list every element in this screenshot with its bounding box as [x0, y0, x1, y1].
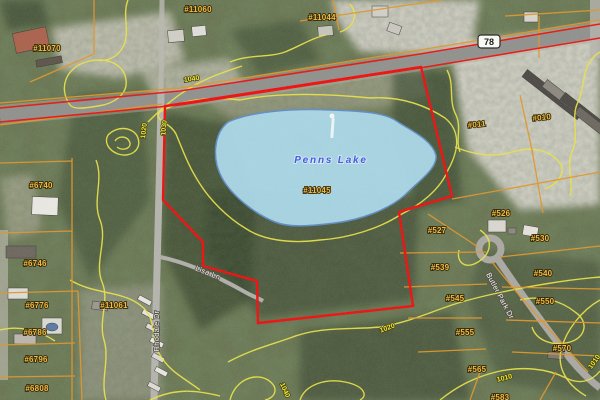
road-right-edge — [590, 0, 600, 58]
parcel-label-565[interactable]: #565 — [468, 365, 487, 374]
building — [168, 29, 185, 42]
building — [8, 288, 28, 299]
parcel-label-6740[interactable]: #6740 — [29, 181, 53, 190]
parcel-label-540[interactable]: #540 — [534, 269, 553, 278]
lake-name-label: Penns Lake — [294, 155, 368, 166]
parcel-label-527[interactable]: #527 — [428, 226, 447, 235]
map-canvas[interactable]: Penns Lake #11045 #11070 #11060 #11044 #… — [0, 0, 600, 400]
parcel-label-530[interactable]: #530 — [531, 234, 550, 243]
parcel-label-11045[interactable]: #11045 — [303, 186, 331, 195]
pool — [46, 323, 58, 331]
parcel-label-011[interactable]: #011 — [467, 119, 486, 130]
parcel-label-570[interactable]: #570 — [553, 344, 572, 353]
parcel-label-11044[interactable]: #11044 — [308, 13, 336, 22]
shield-number: 78 — [484, 37, 494, 47]
parcel-label-11061[interactable]: #11061 — [100, 301, 128, 310]
highway-78-shield: 78 — [478, 35, 500, 48]
parcel-label-555[interactable]: #555 — [456, 328, 475, 337]
boat — [330, 114, 335, 119]
building — [488, 220, 506, 232]
parcel-label-6808[interactable]: #6808 — [25, 384, 49, 393]
contour-label-1030-v: 1030 — [160, 120, 168, 136]
parcel-label-550[interactable]: #550 — [536, 297, 555, 306]
building — [372, 6, 388, 17]
parcel-label-6746[interactable]: #6746 — [23, 259, 47, 268]
building — [6, 246, 36, 258]
building — [508, 228, 516, 234]
parcel-label-11070[interactable]: #11070 — [33, 44, 61, 53]
parcel-label-526[interactable]: #526 — [492, 209, 511, 218]
parcel-label-11060[interactable]: #11060 — [184, 5, 212, 14]
parcel-label-583[interactable]: #583 — [491, 393, 510, 400]
parcel-label-6776[interactable]: #6776 — [25, 301, 49, 310]
road-label-rhodale-dr: Rhodale Dr — [152, 310, 161, 351]
building — [32, 197, 59, 216]
parcel-label-545[interactable]: #545 — [446, 294, 465, 303]
parcel-label-6796[interactable]: #6796 — [24, 355, 48, 364]
parcel-label-6786[interactable]: #6786 — [23, 328, 47, 337]
gis-map-viewport[interactable]: Penns Lake #11045 #11070 #11060 #11044 #… — [0, 0, 600, 400]
parcel-label-539[interactable]: #539 — [431, 263, 450, 272]
building — [192, 25, 207, 36]
driveway-north — [161, 0, 162, 93]
